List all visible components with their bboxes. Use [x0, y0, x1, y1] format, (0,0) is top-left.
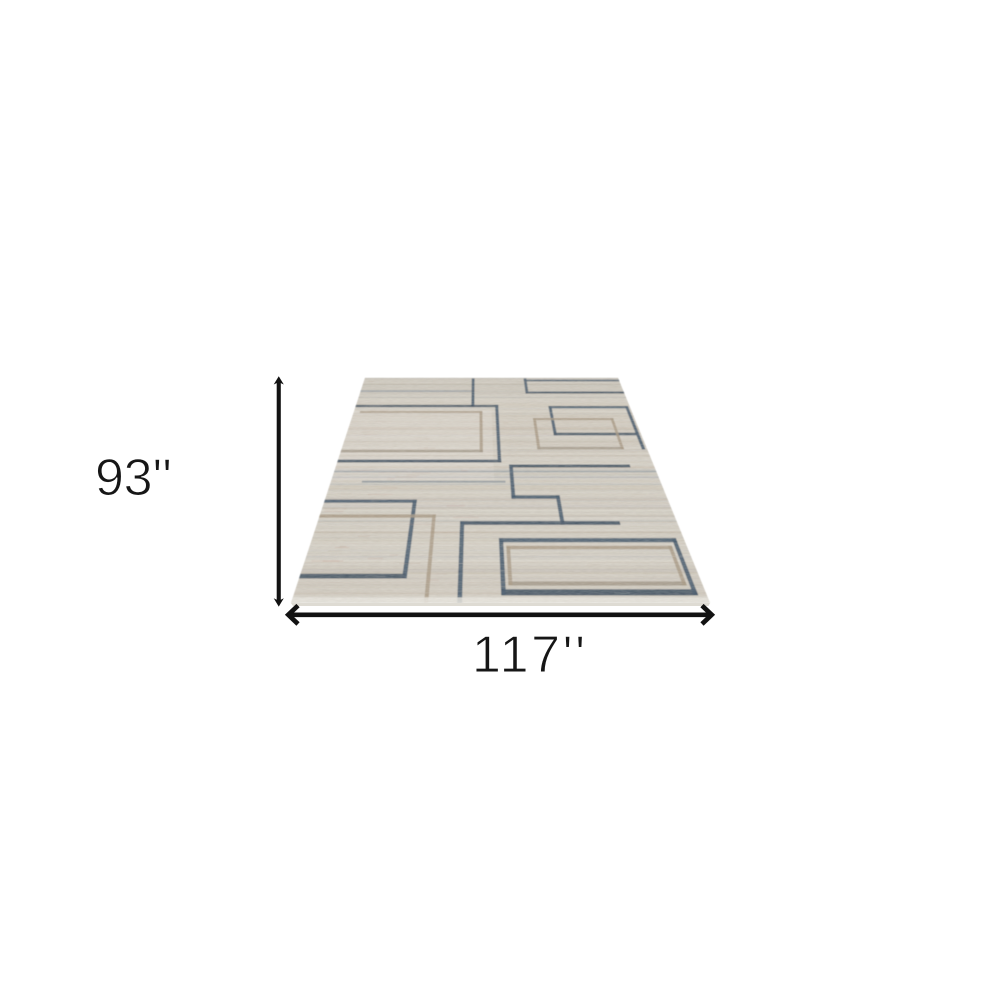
svg-text:117'': 117'' — [472, 626, 585, 684]
svg-text:93'': 93'' — [95, 449, 172, 507]
